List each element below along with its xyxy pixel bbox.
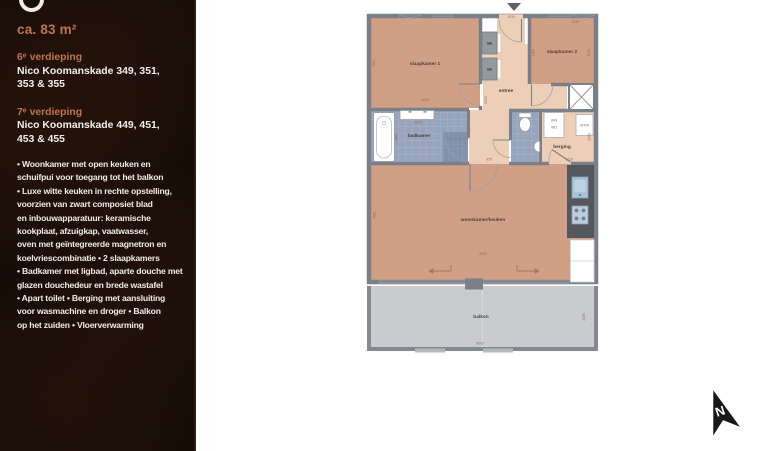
dim-woon-w: 6320 <box>479 252 487 256</box>
address-line: 453 & 455 <box>17 133 186 147</box>
closet-label-mk1: mk <box>487 41 494 46</box>
washbasin <box>400 111 434 120</box>
dim-slk2-left: 1460 <box>532 49 536 57</box>
shaft <box>569 84 594 110</box>
address-line: Nico Koomanskade 349, 351, <box>17 65 186 79</box>
apartment-description: • Woonkamer met open keuken en schuifpui… <box>17 158 193 332</box>
label-wd: WD <box>551 126 557 130</box>
dim-berging-w: 1720 <box>565 158 573 162</box>
room-label-entree: entree <box>499 88 514 94</box>
dim-woon-h: 4581 <box>373 211 377 219</box>
floor-title: 6ᵉ verdieping <box>17 51 186 65</box>
kitchen-cabinet <box>571 261 595 282</box>
dim-slk2-top: 2198 <box>571 20 579 24</box>
dim-balkon-w: 8600 <box>476 342 484 346</box>
dim-slk2-right: 3440 <box>587 49 591 57</box>
room-woonkamer <box>371 164 594 282</box>
dim-balkon-h: 2400 <box>582 313 586 321</box>
dim-entree-mid: 5055 <box>484 96 488 104</box>
floorplan: slaapkamer 1 slaapkamer 2 entree badkame… <box>363 0 605 356</box>
label-wtw: WTW <box>580 124 590 128</box>
kitchen-counter <box>567 165 594 238</box>
room-label-slaapkamer2: slaapkamer 2 <box>547 49 578 55</box>
north-compass: N <box>692 382 750 446</box>
dim-slk1-w: 4020 <box>421 98 429 102</box>
room-label-balkon: balkon <box>473 314 489 320</box>
floor-block-7: 7ᵉ verdieping Nico Koomanskade 449, 451,… <box>17 106 186 147</box>
room-label-badkamer: badkamer <box>408 133 431 139</box>
floor-title: 7ᵉ verdieping <box>17 106 186 120</box>
dim-entree-top: 1034 <box>507 15 515 19</box>
address-line: 353 & 355 <box>17 78 186 92</box>
dim-hal-onder: 975 <box>486 158 492 162</box>
dim-slk1-h: 3081 <box>372 59 376 67</box>
entrance-arrow-icon <box>507 3 521 11</box>
dim-berging-h: 2005 <box>588 133 592 141</box>
closet-label-mk2: mk <box>487 67 494 72</box>
label-wm: WM <box>551 119 557 123</box>
room-label-slaapkamer1: slaapkamer 1 <box>410 61 441 67</box>
shower <box>443 132 468 164</box>
floor-block-6: 6ᵉ verdieping Nico Koomanskade 349, 351,… <box>17 51 186 92</box>
stove <box>572 206 588 224</box>
kitchen-cabinet <box>571 240 595 261</box>
toilet-bowl <box>520 118 531 132</box>
address-line: Nico Koomanskade 449, 451, <box>17 119 186 133</box>
dim-badkamer-w: 1620 <box>414 121 422 125</box>
room-label-woonkamer: woonkamer/keuken <box>460 217 506 223</box>
info-sidebar: ca. 83 m² 6ᵉ verdieping Nico Koomanskade… <box>0 0 196 451</box>
dim-badkamer-h: 2085 <box>395 133 399 141</box>
room-label-berging: berging <box>553 144 571 150</box>
toilet-cistern <box>519 113 531 118</box>
